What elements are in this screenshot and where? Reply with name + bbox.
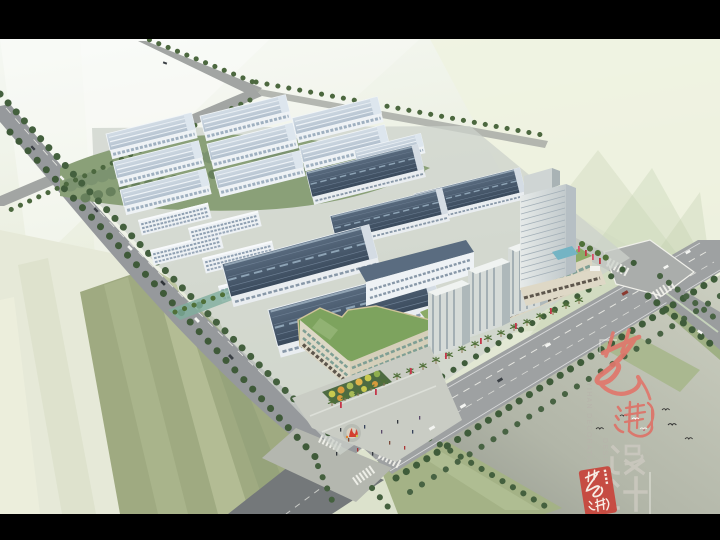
scene: YIHAN DECORATION DESIGN: [0, 39, 720, 514]
entrance-gate: [590, 266, 600, 271]
rendered-image: YIHAN DECORATION DESIGN 艺瀚 设计 艺瀚: [0, 0, 720, 540]
letterbox-top: [0, 0, 720, 39]
letterbox-bottom: [0, 514, 720, 540]
photo-area: YIHAN DECORATION DESIGN 艺瀚 设计 艺瀚: [0, 39, 720, 514]
watermark-vertical-text-1: YIHAN DECORATION: [585, 382, 592, 472]
